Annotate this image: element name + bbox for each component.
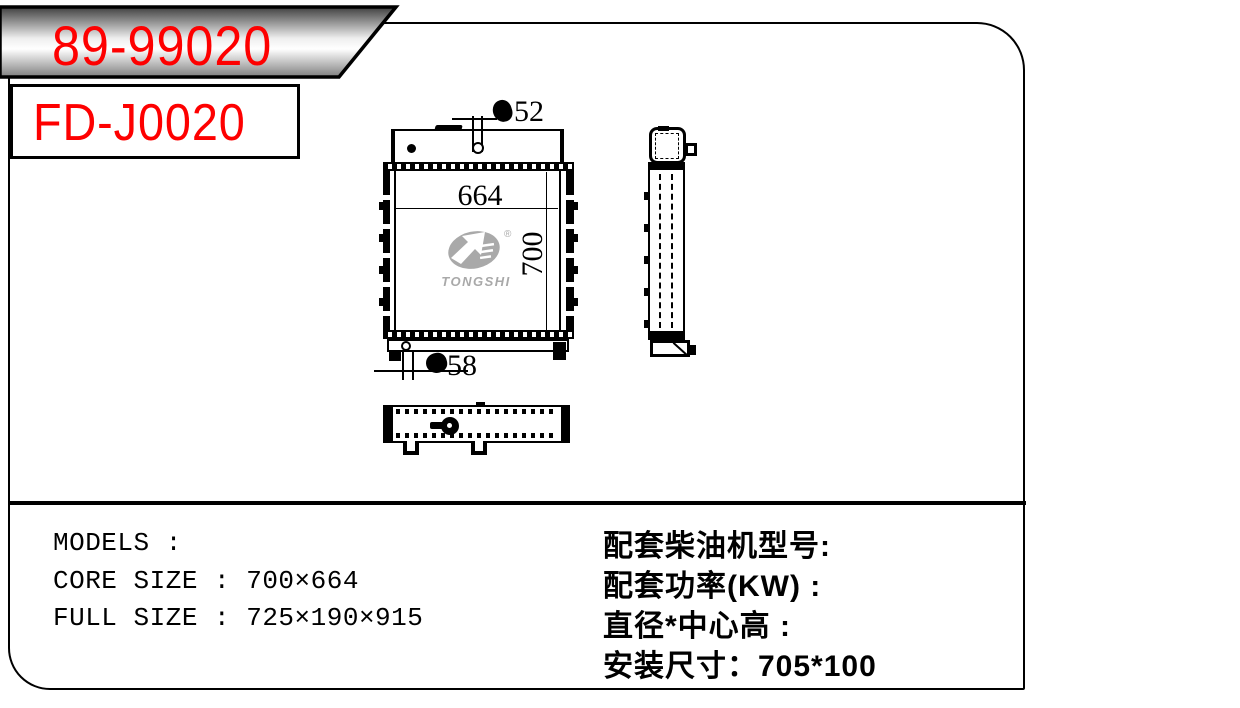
side-core-bottom-band	[648, 331, 685, 340]
model-code-box: FD-J0020	[10, 84, 300, 159]
spec-diameter-center-height: 直径*中心高 :	[603, 601, 791, 645]
side-core	[648, 162, 685, 340]
core-top-fin-band	[383, 162, 574, 171]
logo-brand-text: TONGSHI	[441, 274, 511, 289]
bv-right-bracket	[471, 441, 487, 455]
top-tank-cap	[434, 125, 462, 131]
spec-mounting-size: 安装尺寸：705*100	[603, 641, 877, 685]
core-right-inner-line	[559, 171, 561, 330]
core-left-mount-ticks	[379, 178, 383, 328]
spec-engine-model: 配套柴油机型号:	[603, 521, 831, 565]
bottom-port-circle	[401, 341, 411, 351]
phi58-ext-line-1	[402, 352, 404, 380]
bv-top-fin-row	[396, 409, 558, 414]
phi58-ext-line-2	[412, 352, 414, 380]
core-left-channel	[383, 171, 390, 330]
part-number-text: 89-99020	[52, 13, 272, 78]
spec-power-kw: 配套功率(KW) :	[603, 561, 821, 605]
bottom-port-diameter-label: 58	[447, 349, 477, 383]
side-top-notch	[658, 126, 669, 131]
core-bottom-fin-band	[383, 330, 574, 339]
side-core-dash-line-2	[671, 174, 673, 328]
bottom-right-foot	[553, 342, 566, 360]
logo-mark: ® TONGSHI	[438, 224, 518, 294]
top-tank-plug-dot	[407, 144, 416, 153]
model-code-text: FD-J0020	[33, 93, 246, 153]
bottom-tank	[387, 339, 569, 352]
registered-icon: ®	[504, 229, 512, 240]
core-right-mount-ticks	[574, 178, 578, 328]
bv-filler-hole	[447, 423, 452, 428]
spec-core-size: CORE SIZE : 700×664	[53, 566, 359, 596]
core-right-channel	[566, 171, 574, 330]
core-width-dim-line	[396, 208, 558, 209]
bv-top-nub	[476, 402, 485, 407]
bv-bottom-fin-row	[396, 433, 558, 438]
bv-right-cap	[561, 405, 570, 443]
side-top-tab	[685, 143, 697, 156]
catalog-sheet: 89-99020 FD-J0020 52 664 700	[0, 0, 1240, 708]
bv-left-cap	[383, 405, 393, 443]
bottom-left-foot	[389, 351, 401, 361]
bv-left-bracket	[403, 441, 419, 455]
side-core-top-band	[648, 162, 685, 170]
core-left-inner-line	[394, 171, 396, 330]
side-core-dash-line-1	[659, 174, 661, 328]
spec-full-size: FULL SIZE : 725×190×915	[53, 603, 423, 633]
section-divider	[8, 501, 1026, 505]
filler-neck-base-circle	[472, 142, 484, 154]
core-height-label: 700	[516, 218, 550, 290]
side-bottom-tab	[689, 345, 696, 355]
side-top-tank-inner	[655, 133, 679, 159]
top-port-diameter-label: 52	[514, 95, 544, 129]
side-core-mount-ticks	[644, 168, 648, 333]
spec-models: MODELS :	[53, 528, 182, 558]
